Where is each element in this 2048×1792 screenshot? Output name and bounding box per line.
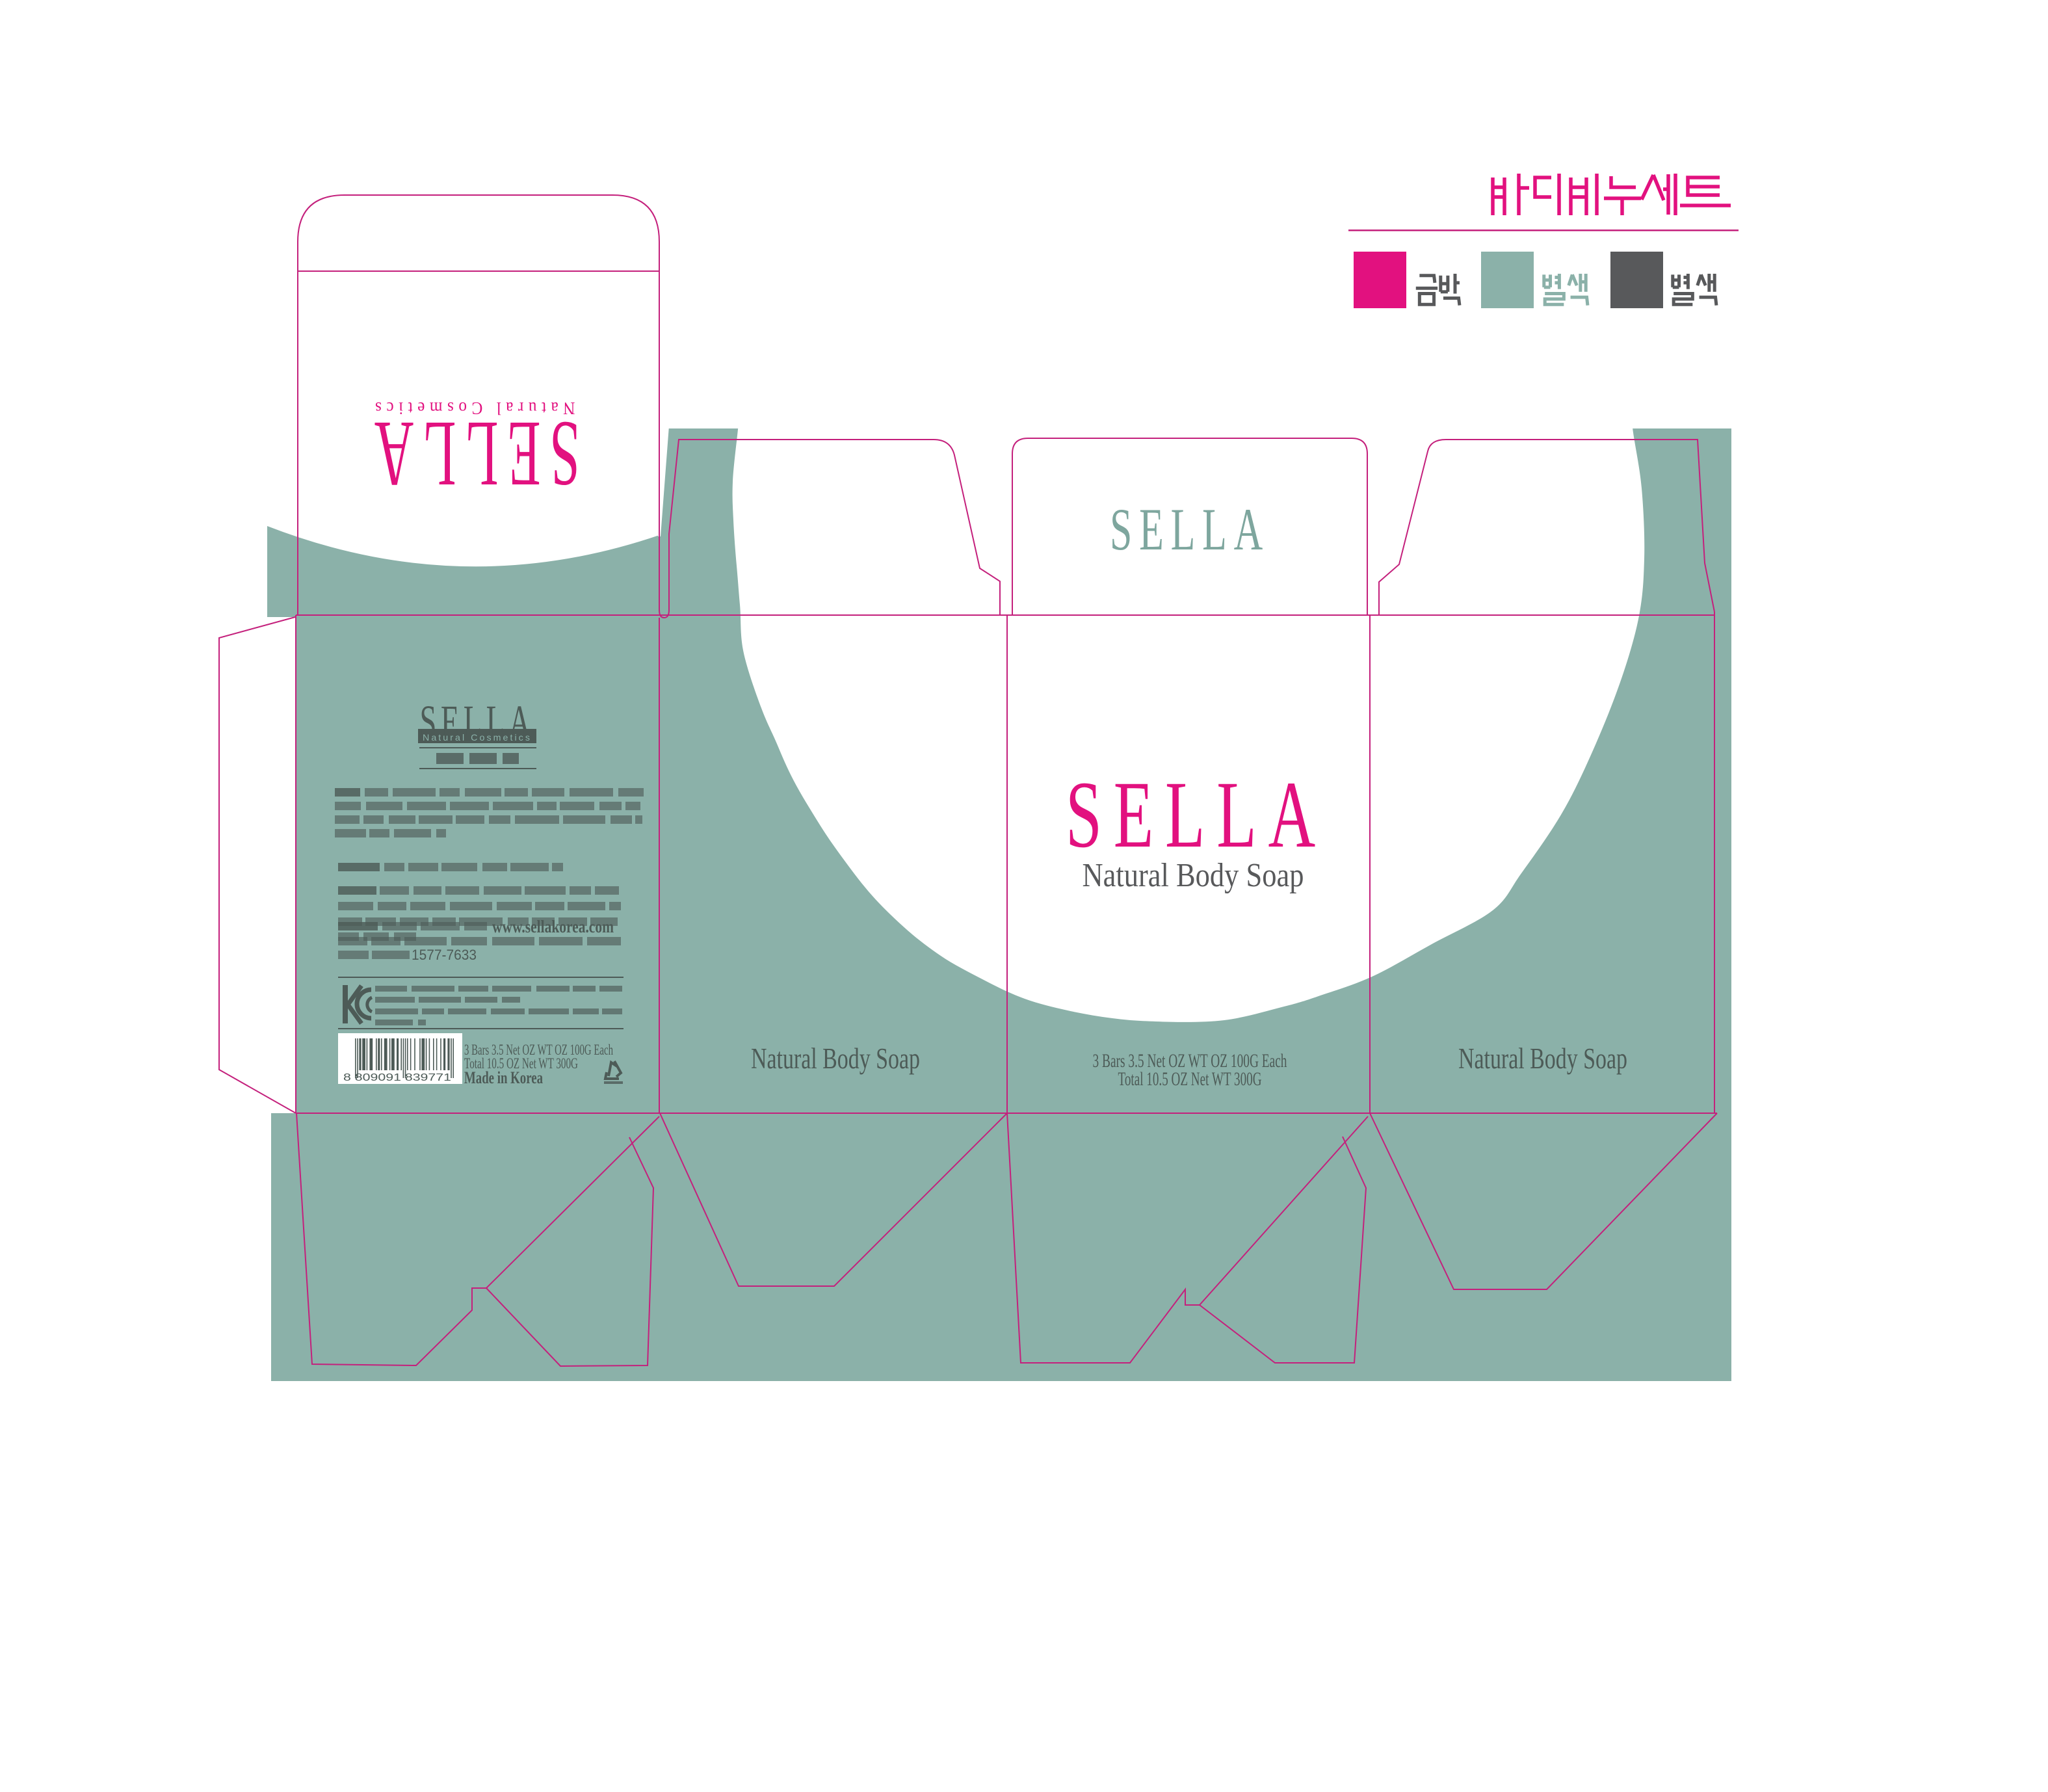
svg-text:Made in Korea: Made in Korea — [464, 1068, 543, 1087]
svg-text:8 809091 839771: 8 809091 839771 — [343, 1072, 451, 1083]
svg-text:Natural Body Soap: Natural Body Soap — [751, 1042, 920, 1075]
svg-text:1577-7633: 1577-7633 — [412, 947, 477, 963]
svg-text:Natural Cosmetics: Natural Cosmetics — [371, 399, 575, 418]
svg-text:SELLA: SELLA — [1110, 496, 1270, 562]
svg-text:Natural Body Soap: Natural Body Soap — [1458, 1042, 1627, 1075]
svg-text:Natural Body Soap: Natural Body Soap — [1083, 857, 1304, 894]
svg-text:Natural Cosmetics: Natural Cosmetics — [423, 732, 532, 743]
svg-text:Total 10.5 OZ Net WT 300G: Total 10.5 OZ Net WT 300G — [1118, 1068, 1262, 1090]
svg-text:www.sellakorea.com: www.sellakorea.com — [492, 917, 614, 936]
svg-text:SELLA: SELLA — [1066, 761, 1327, 867]
